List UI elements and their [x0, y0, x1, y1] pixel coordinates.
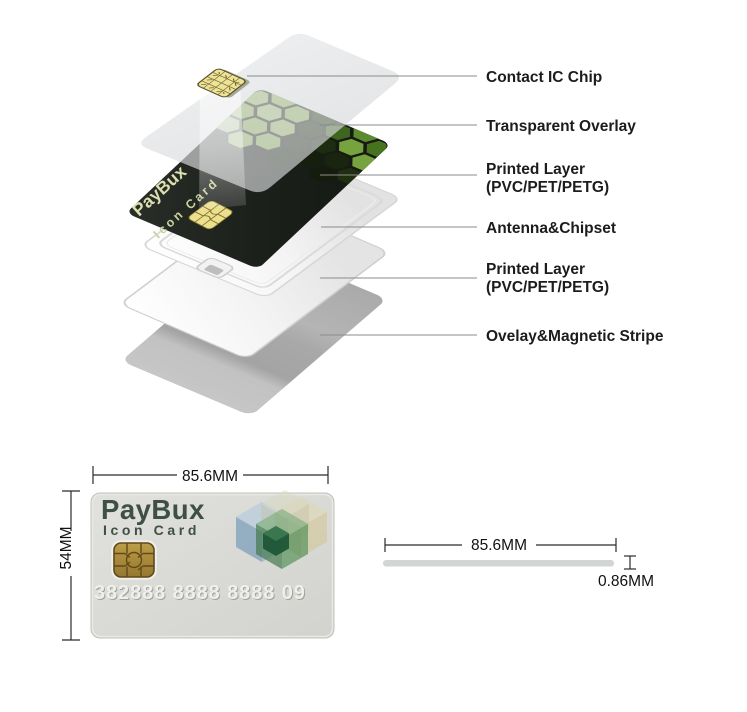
svg-text:Transparent Overlay: Transparent Overlay	[486, 118, 636, 135]
svg-text:Contact IC Chip: Contact IC Chip	[486, 69, 602, 86]
svg-text:85.6MM: 85.6MM	[182, 468, 238, 485]
svg-text:Antenna&Chipset: Antenna&Chipset	[486, 220, 616, 237]
svg-text:Printed Layer: Printed Layer	[486, 161, 585, 178]
svg-text:Icon Card: Icon Card	[103, 522, 200, 538]
svg-text:85.6MM: 85.6MM	[471, 537, 527, 554]
svg-text:PayBux: PayBux	[101, 494, 205, 525]
svg-text:0.86MM: 0.86MM	[598, 573, 654, 590]
svg-text:(PVC/PET/PETG): (PVC/PET/PETG)	[486, 179, 609, 196]
svg-text:382888 8888 8888 09: 382888 8888 8888 09	[94, 582, 306, 604]
svg-text:Printed Layer: Printed Layer	[486, 261, 585, 278]
svg-text:(PVC/PET/PETG): (PVC/PET/PETG)	[486, 279, 609, 296]
svg-text:54MM: 54MM	[58, 526, 75, 569]
svg-text:Ovelay&Magnetic Stripe: Ovelay&Magnetic Stripe	[486, 328, 664, 345]
